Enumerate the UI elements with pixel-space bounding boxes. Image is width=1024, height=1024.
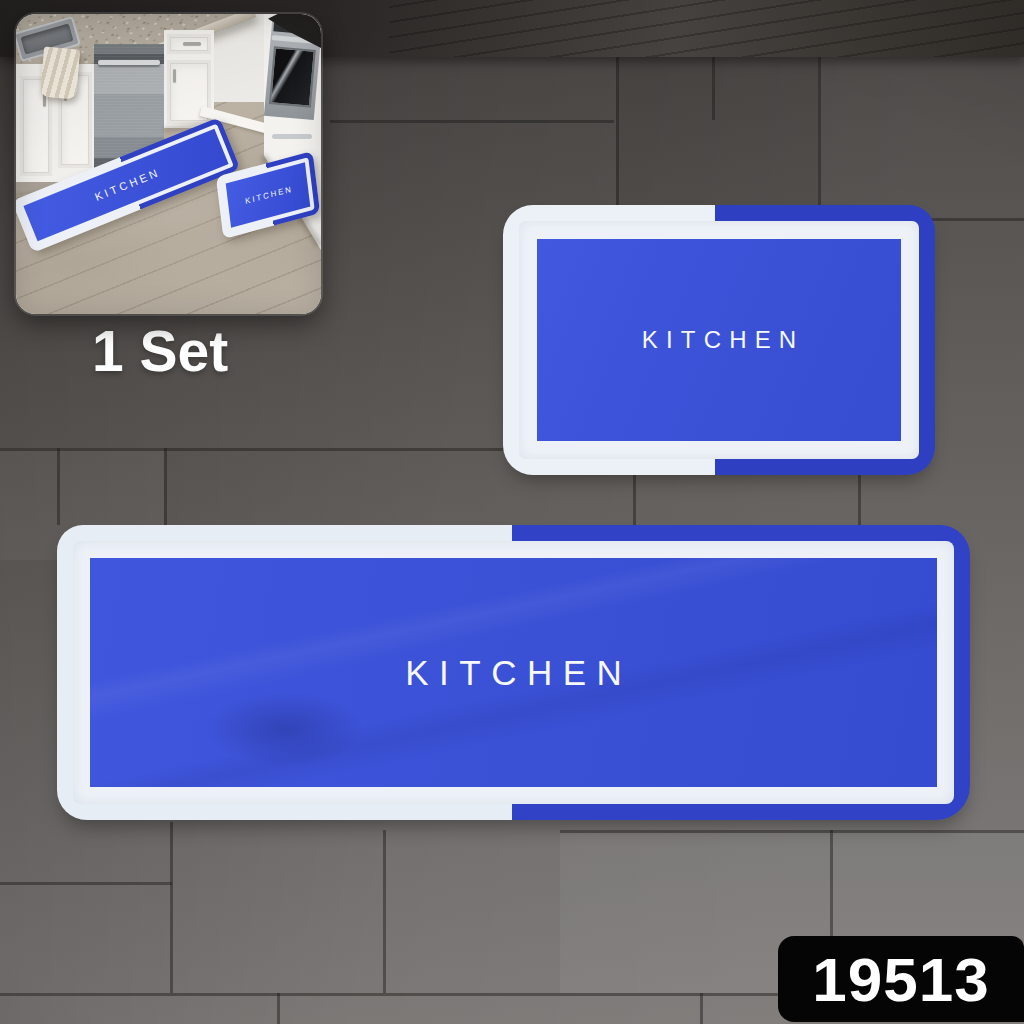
set-caption: 1 Set: [92, 318, 228, 384]
small-mat: KITCHEN: [503, 205, 935, 475]
grout-line: [818, 57, 821, 218]
grout-line: [57, 448, 60, 525]
grout-line: [0, 882, 172, 885]
large-mat-center: KITCHEN: [90, 558, 937, 787]
drawer-handle: [183, 42, 201, 45]
grout-line: [858, 475, 861, 525]
marble-veins: [389, 0, 1024, 57]
large-mat: KITCHEN: [57, 525, 970, 820]
product-code-badge: 19513: [778, 936, 1024, 1022]
dishwasher-handle: [98, 60, 160, 65]
grout-line: [330, 120, 614, 123]
small-mat-center: KITCHEN: [537, 239, 901, 441]
drawer-front: [167, 34, 211, 54]
grout-line: [633, 475, 636, 525]
product-photo-scene: KITCHEN KITCHEN 1 Set KITCHEN KITCHEN 19…: [0, 0, 1024, 1024]
grout-line: [560, 830, 1024, 833]
grout-line: [277, 993, 280, 1024]
large-mat-label: KITCHEN: [395, 653, 633, 693]
grout-line: [700, 993, 703, 1024]
oven-drawer-handle: [272, 134, 312, 139]
product-code: 19513: [812, 944, 989, 1015]
oven-glass-door: [269, 46, 316, 107]
grout-line: [830, 830, 833, 936]
inset-small-mat-label: KITCHEN: [243, 184, 293, 206]
grout-line: [383, 830, 386, 993]
dish-towel: [40, 47, 80, 100]
cabinet-handle: [173, 69, 176, 82]
mat-smudge: [175, 677, 395, 782]
small-mat-label: KITCHEN: [634, 326, 805, 354]
grout-line: [712, 57, 715, 120]
product-photo-inset: KITCHEN KITCHEN: [16, 14, 321, 314]
grout-line: [170, 822, 173, 993]
